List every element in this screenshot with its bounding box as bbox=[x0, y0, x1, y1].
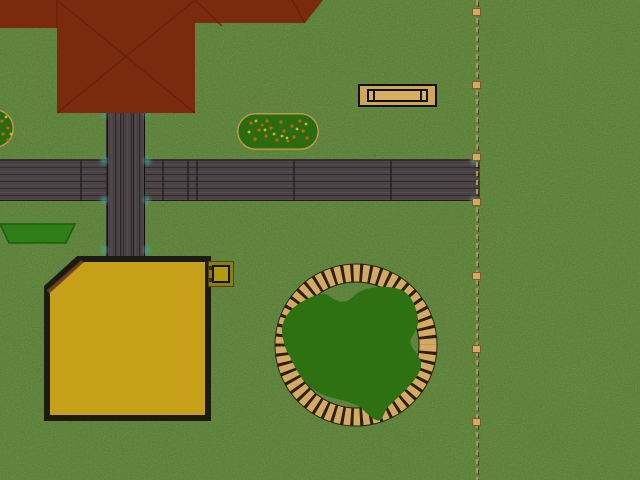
fence-post[interactable] bbox=[472, 272, 481, 280]
roof-outline bbox=[0, 0, 323, 113]
storage-box-hinge bbox=[209, 266, 212, 270]
path-node-marker bbox=[98, 194, 110, 206]
path-plank-seam bbox=[196, 160, 198, 200]
bench-armrest-right bbox=[420, 91, 422, 100]
path-node-marker bbox=[98, 244, 110, 256]
path-plank-seam bbox=[187, 160, 189, 200]
path-node-marker bbox=[141, 244, 153, 256]
fence-post[interactable] bbox=[472, 8, 481, 16]
hedge[interactable] bbox=[0, 222, 78, 245]
storage-box[interactable] bbox=[208, 261, 234, 287]
storage-box-hinge bbox=[209, 278, 212, 282]
garden-canvas bbox=[0, 0, 640, 480]
sandbox-sand bbox=[50, 262, 205, 415]
path-plank-seam bbox=[80, 160, 82, 200]
path-node-marker bbox=[141, 155, 153, 167]
fence-post[interactable] bbox=[472, 81, 481, 89]
bench-seat bbox=[367, 89, 428, 102]
fence-post[interactable] bbox=[472, 418, 481, 426]
flowerbed-oval[interactable] bbox=[237, 113, 319, 150]
path-horizontal[interactable] bbox=[0, 159, 480, 201]
path-plank-seam bbox=[390, 160, 392, 200]
bench[interactable] bbox=[358, 84, 437, 107]
fence-post[interactable] bbox=[472, 345, 481, 353]
fence-line-shadow bbox=[478, 2, 479, 480]
hedge-shape bbox=[0, 224, 75, 243]
house-roof[interactable] bbox=[0, 0, 330, 116]
fence-post[interactable] bbox=[472, 198, 481, 206]
bench-armrest-left bbox=[373, 91, 375, 100]
path-plank-seam bbox=[162, 160, 164, 200]
flowerbed-oval-edge[interactable] bbox=[0, 109, 14, 148]
path-node-marker bbox=[98, 155, 110, 167]
fence-post[interactable] bbox=[472, 153, 481, 161]
path-node-marker bbox=[141, 194, 153, 206]
island-bed[interactable] bbox=[272, 261, 442, 429]
path-plank-seam bbox=[293, 160, 295, 200]
sandbox[interactable] bbox=[44, 256, 211, 421]
storage-box-lid bbox=[212, 265, 230, 283]
path-vertical[interactable] bbox=[106, 112, 145, 257]
